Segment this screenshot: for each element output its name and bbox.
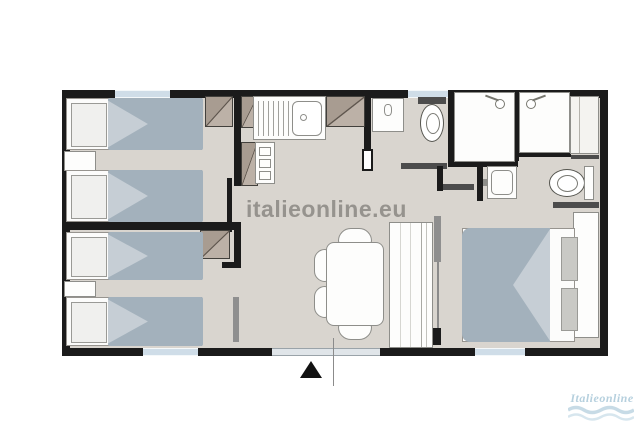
wall-bedroom2-right — [234, 230, 241, 268]
sink-basin — [292, 101, 322, 136]
bed-cover — [462, 228, 550, 342]
single-bed-icon — [66, 170, 202, 222]
single-bed-icon — [66, 98, 202, 150]
washbasin-icon — [487, 166, 517, 199]
washbasin-icon — [372, 98, 404, 132]
wall-wc2-bottom — [553, 202, 599, 208]
double-bed-icon — [462, 228, 575, 342]
floor-plan: italieonline.eu Italieonline — [0, 0, 640, 426]
wall-cabinet-bottom — [571, 155, 599, 159]
toilet-icon — [420, 104, 444, 142]
single-bed-icon — [66, 297, 202, 346]
wall-right — [600, 90, 608, 356]
wall-wc1-left — [364, 90, 371, 152]
faucet-icon — [483, 179, 488, 186]
sink-drainer — [258, 101, 290, 136]
sofa-icon — [389, 222, 433, 348]
kitchen-sink-icon — [253, 96, 326, 140]
pillow-icon — [561, 288, 578, 331]
bed-cover — [108, 98, 203, 150]
wall-stub — [222, 262, 234, 268]
shower-icon — [519, 92, 570, 153]
entrance-arrow-icon — [300, 361, 322, 378]
window — [143, 348, 198, 356]
pillow-icon — [71, 175, 107, 219]
pillow-icon — [71, 103, 107, 147]
wardrobe-icon — [200, 230, 230, 259]
bed-cover — [108, 170, 203, 222]
watermark: italieonline.eu — [246, 198, 407, 221]
bed-cover — [108, 297, 203, 346]
toilet-tank — [418, 97, 446, 104]
toilet-tank — [584, 166, 594, 200]
bed-cover — [108, 232, 203, 280]
bathroom-cabinet-icon — [570, 96, 599, 154]
brand-logo: Italieonline — [568, 392, 636, 422]
sink-drain — [300, 114, 307, 121]
wall-bedroom3-left — [433, 328, 441, 345]
shower-icon — [454, 92, 515, 162]
sliding-door — [434, 216, 441, 262]
entrance-door — [272, 348, 380, 356]
window — [475, 348, 525, 356]
kitchen-cabinet-icon — [326, 96, 365, 127]
wave-icon — [568, 405, 634, 421]
wall-bedroom1-right — [234, 90, 241, 186]
door-panel — [362, 149, 373, 171]
wall-thin — [437, 262, 439, 330]
wall-bedroom-divider — [62, 222, 241, 230]
pillow-icon — [561, 237, 578, 281]
entrance-line — [333, 338, 334, 386]
pillow-icon — [71, 237, 107, 277]
stove-icon — [255, 142, 275, 184]
nightstand-icon — [64, 151, 96, 171]
brand-logo-text: Italieonline — [568, 392, 636, 404]
pillow-icon — [71, 302, 107, 343]
wardrobe-icon — [205, 96, 233, 127]
dining-table-icon — [326, 242, 384, 326]
sliding-door — [443, 184, 474, 190]
single-bed-icon — [66, 232, 202, 280]
toilet-icon — [549, 169, 585, 197]
nightstand-icon — [64, 281, 96, 297]
sliding-door — [233, 297, 239, 342]
window — [115, 90, 170, 98]
